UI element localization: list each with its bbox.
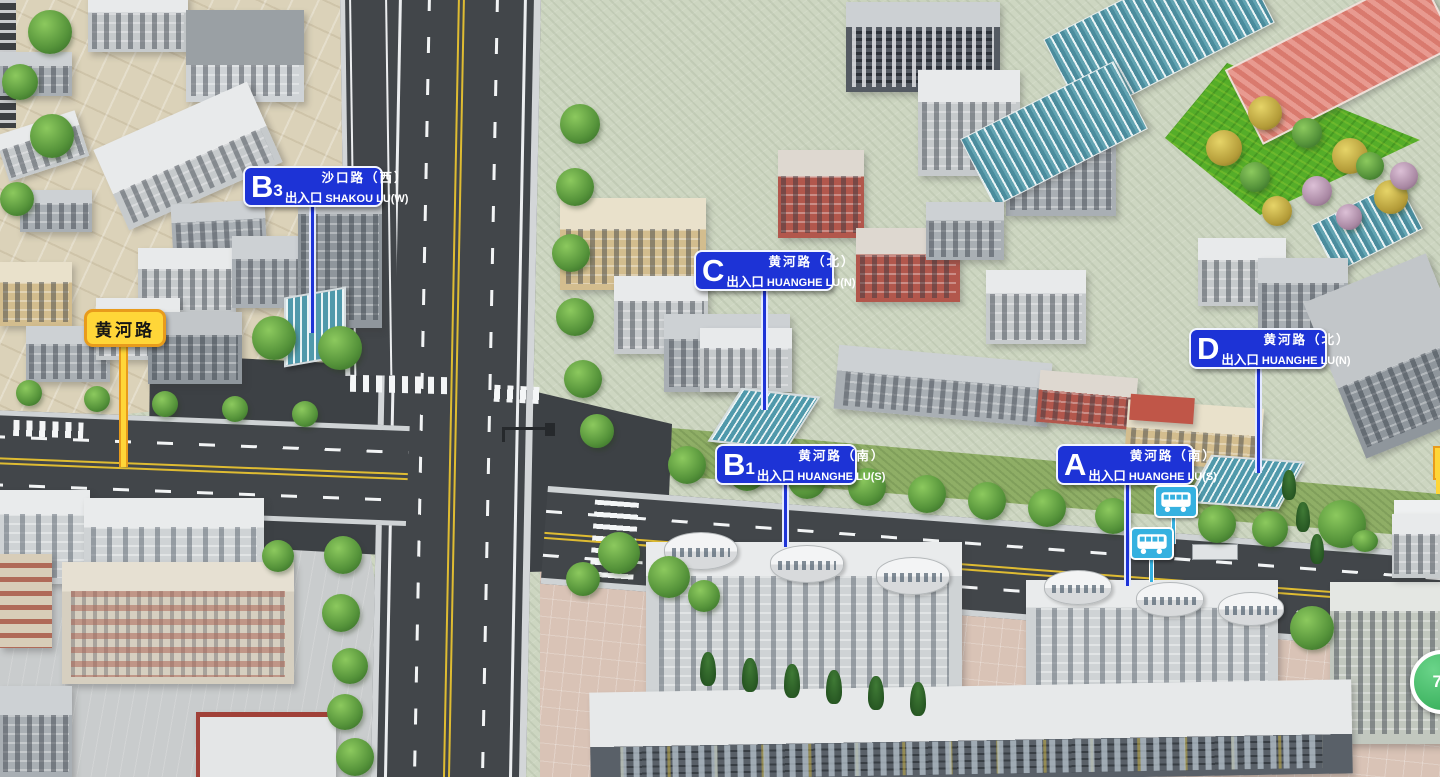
building	[1129, 394, 1195, 424]
rooftop-cylinder	[1044, 570, 1112, 605]
tree	[560, 104, 600, 144]
exit-sign-text: 黄河路（南） 出入口HUANGHE LU(S)	[757, 445, 886, 484]
tree	[2, 64, 38, 100]
conifer-tree	[868, 676, 884, 710]
traffic-light-head	[545, 423, 555, 436]
tree	[580, 414, 614, 448]
building	[778, 150, 864, 238]
exit-road-name-en: SHAKOU LU(W)	[325, 193, 408, 205]
partial-road-label-pole	[1436, 478, 1440, 494]
exit-entrance-cn: 出入口	[757, 465, 795, 484]
tree	[564, 360, 602, 398]
conifer-tree	[1282, 470, 1296, 500]
exit-sign-text: 黄河路（北） 出入口HUANGHE LU(N)	[726, 251, 855, 290]
tree	[968, 482, 1006, 520]
exit-road-name-en: HUANGHE LU(N)	[767, 277, 856, 289]
tree	[1290, 606, 1334, 650]
exit-sign-text: 黄河路（南） 出入口HUANGHE LU(S)	[1088, 445, 1217, 484]
exit-sign-pole-c	[761, 288, 768, 410]
exit-sign-b1[interactable]: B1 黄河路（南） 出入口HUANGHE LU(S)	[715, 444, 857, 485]
exit-road-name-cn: 黄河路（南）	[798, 445, 885, 464]
tree	[30, 114, 74, 158]
exit-sign-a[interactable]: A 黄河路（南） 出入口HUANGHE LU(S)	[1056, 444, 1194, 485]
tree	[648, 556, 690, 598]
exit-entrance-cn: 出入口	[1088, 465, 1126, 484]
tree	[1336, 204, 1362, 230]
exit-letter: C	[702, 255, 723, 286]
lane-dash	[0, 435, 409, 454]
building	[88, 0, 188, 52]
conifer-tree	[784, 664, 800, 698]
building	[986, 270, 1086, 344]
exit-letter: B	[723, 449, 744, 480]
tree	[318, 326, 362, 370]
building	[926, 202, 1004, 260]
building	[700, 328, 792, 392]
exit-road-name-en: HUANGHE LU(S)	[1129, 471, 1217, 483]
exit-letter: B	[251, 171, 272, 202]
exit-sign-d[interactable]: D 黄河路（北） 出入口HUANGHE LU(N)	[1189, 328, 1327, 369]
tree	[1262, 196, 1292, 226]
tree	[0, 182, 34, 216]
crosswalk	[13, 420, 84, 439]
long-residential-block	[589, 679, 1353, 777]
tree	[1198, 505, 1236, 543]
rooftop-cylinder	[876, 557, 950, 595]
tree	[1292, 118, 1322, 148]
traffic-light-arm	[504, 427, 548, 430]
exit-letter: D	[1197, 333, 1218, 364]
tree	[152, 391, 178, 417]
tree	[28, 10, 72, 54]
tree	[1302, 176, 1332, 206]
exit-entrance-cn: 出入口	[285, 187, 323, 206]
exit-sign-text: 沙口路（西） 出入口SHAKOU LU(W)	[285, 167, 409, 206]
conifer-tree	[910, 682, 926, 716]
tree	[552, 234, 590, 272]
conifer-tree	[742, 658, 758, 692]
exit-entrance-cn: 出入口	[1221, 349, 1259, 368]
bus-route-number: 73	[1433, 672, 1440, 692]
tree	[556, 298, 594, 336]
building	[0, 686, 72, 777]
tree	[668, 446, 706, 484]
tree	[222, 396, 248, 422]
conifer-tree	[700, 652, 716, 686]
exit-road-name-cn: 沙口路（西）	[321, 167, 408, 186]
tree	[1356, 152, 1384, 180]
tree	[16, 380, 42, 406]
exit-road-name-cn: 黄河路（北）	[1264, 329, 1351, 348]
road-label-text: 黄河路	[95, 316, 155, 341]
conifer-tree	[826, 670, 842, 704]
exit-letter: A	[1064, 449, 1085, 480]
tree	[598, 532, 640, 574]
tree	[556, 168, 594, 206]
exit-sign-b3[interactable]: B3 沙口路（西） 出入口SHAKOU LU(W)	[243, 166, 383, 207]
building	[0, 262, 72, 326]
exit-sign-c[interactable]: C 黄河路（北） 出入口HUANGHE LU(N)	[694, 250, 834, 291]
exit-road-name-cn: 黄河路（北）	[769, 251, 856, 270]
building	[196, 712, 336, 777]
exit-sign-pole-b1	[782, 483, 789, 547]
exit-road-name-cn: 黄河路（南）	[1130, 445, 1217, 464]
tree	[332, 648, 368, 684]
tree	[252, 316, 296, 360]
road-label-sign: 黄河路	[84, 309, 166, 347]
tree	[327, 694, 363, 730]
tree	[336, 738, 374, 776]
exit-sign-pole-b3	[309, 205, 316, 333]
bus-stop-icon[interactable]	[1130, 527, 1174, 560]
bus-shelter	[1192, 544, 1238, 560]
tree	[262, 540, 294, 572]
rooftop-cylinder	[1136, 582, 1204, 617]
building	[1036, 370, 1138, 430]
exit-road-name-en: HUANGHE LU(N)	[1262, 355, 1351, 367]
exit-number: 1	[745, 459, 754, 479]
map-canvas: B3 沙口路（西） 出入口SHAKOU LU(W) C 黄河路（北） 出入口HU…	[0, 0, 1440, 777]
exit-sign-text: 黄河路（北） 出入口HUANGHE LU(N)	[1221, 329, 1350, 368]
tree	[324, 536, 362, 574]
tree	[1390, 162, 1418, 190]
crosswalk	[350, 375, 450, 395]
bus-icon	[1136, 533, 1168, 555]
tree	[1028, 489, 1066, 527]
exit-number: 3	[273, 181, 282, 201]
crosswalk	[494, 385, 545, 405]
traffic-light-pole	[502, 427, 505, 442]
partial-road-label-sign	[1433, 446, 1440, 480]
tree	[84, 386, 110, 412]
exit-road-name-en: HUANGHE LU(S)	[797, 471, 885, 483]
bus-stop-icon[interactable]	[1154, 485, 1198, 518]
conifer-tree	[1310, 534, 1324, 564]
apartment-block	[62, 562, 294, 684]
apartment-block	[0, 554, 52, 648]
bush	[1352, 530, 1378, 552]
tree	[908, 475, 946, 513]
tree	[1206, 130, 1242, 166]
exit-sign-pole-d	[1255, 367, 1262, 473]
conifer-tree	[1296, 502, 1310, 532]
tree	[566, 562, 600, 596]
tree	[1248, 96, 1282, 130]
exit-entrance-cn: 出入口	[726, 271, 764, 290]
rooftop-cylinder	[1218, 592, 1284, 626]
building	[1392, 514, 1440, 578]
tree	[292, 401, 318, 427]
tree	[322, 594, 360, 632]
road-label-pole	[119, 345, 128, 467]
tree	[1252, 511, 1288, 547]
rooftop-cylinder	[770, 545, 844, 583]
tree	[1240, 162, 1270, 192]
tree	[688, 580, 720, 612]
bus-icon	[1160, 491, 1192, 513]
